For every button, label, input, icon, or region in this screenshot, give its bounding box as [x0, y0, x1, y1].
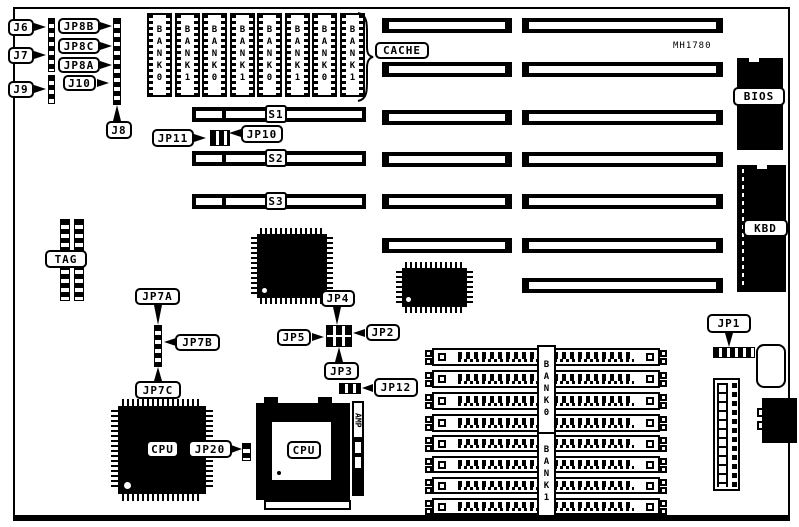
amp-slot-1	[355, 442, 361, 453]
callout-jp1: JP1	[707, 314, 751, 333]
callout-jp5-label: JP5	[283, 331, 306, 344]
callout-j10-label: J10	[68, 77, 91, 90]
callout-j10: J10	[63, 75, 96, 91]
simm-tab	[660, 416, 667, 423]
dram-bank0-label: BANK0	[537, 345, 556, 434]
slot-s2-label: S2	[265, 149, 287, 167]
simm-latch-left	[438, 397, 446, 405]
simm-tab	[660, 500, 667, 507]
pointer-jp11	[194, 134, 206, 142]
simm-tab	[660, 358, 667, 365]
pointer-j10	[97, 79, 109, 87]
jp20-jumper	[242, 443, 251, 461]
bank-label: BANK0	[204, 15, 225, 95]
callout-jp5: JP5	[277, 329, 311, 346]
simm-tab	[660, 372, 667, 379]
bank-label: BANK1	[177, 15, 198, 95]
cache-simm-socket: BANK1	[175, 13, 200, 97]
cpu-pga-pin1-dot	[277, 471, 281, 475]
isa-slot-8bit-segment	[382, 18, 512, 33]
kbd-label: KBD	[743, 219, 788, 237]
cpu-pins-bottom	[122, 494, 202, 501]
power-connector	[713, 378, 740, 491]
simm-latch-left	[438, 482, 446, 490]
simm-tab	[660, 380, 667, 387]
chip2-pins-bottom	[405, 307, 464, 313]
bank-label: BANK0	[259, 15, 280, 95]
amp-power-connector: AMP	[352, 401, 364, 496]
simm-latch-right	[646, 419, 654, 427]
jp7-jumper-strip	[154, 325, 162, 367]
motherboard-diagram: J6 J7 J9 JP8B JP8C JP8A J10 J8 BANK0 BAN…	[0, 0, 799, 527]
callout-jp20: JP20	[188, 440, 232, 458]
simm-tab	[425, 372, 432, 379]
callout-jp8a: JP8A	[58, 57, 100, 73]
cache-simm-socket: BANK0	[147, 13, 172, 97]
chipset-chip-2	[402, 268, 467, 307]
jp8-jumper-strip	[113, 18, 121, 105]
simm-latch-left	[438, 440, 446, 448]
slot-s3-label: S3	[265, 192, 287, 210]
callout-j6: J6	[8, 19, 34, 36]
simm-latch-right	[646, 503, 654, 511]
simm-latch-right	[646, 461, 654, 469]
simm-tab	[425, 437, 432, 444]
cpu-pins-left	[111, 410, 118, 490]
simm-latch-right	[646, 353, 654, 361]
din-notch-1	[757, 408, 764, 417]
bios-label: BIOS	[733, 87, 785, 106]
jp12-jumper	[339, 383, 361, 394]
simm-tab	[660, 437, 667, 444]
vl-slot-s1: S1	[192, 107, 366, 122]
simm-tab	[660, 487, 667, 494]
simm-tab	[660, 402, 667, 409]
callout-jp8c: JP8C	[58, 38, 100, 54]
chip1-pins-left	[251, 237, 257, 295]
callout-j8: J8	[106, 121, 132, 139]
cpu-socket-text: CPU	[293, 444, 316, 457]
simm-tab	[660, 394, 667, 401]
bank-label: BANK1	[287, 15, 308, 95]
isa-slot-16bit-segment	[522, 62, 723, 77]
callout-j8-label: J8	[111, 124, 126, 137]
callout-jp8b: JP8B	[58, 18, 100, 34]
callout-jp7a-label: JP7A	[142, 290, 173, 303]
callout-jp4: JP4	[321, 290, 355, 307]
callout-jp2: JP2	[366, 324, 400, 341]
bank-label: BANK0	[314, 15, 335, 95]
callout-jp20-label: JP20	[195, 443, 226, 456]
pointer-j6	[34, 23, 46, 31]
j9-pin-header	[48, 75, 55, 104]
callout-jp12: JP12	[374, 378, 418, 397]
isa-slot-16bit-segment	[522, 194, 723, 209]
callout-jp12-label: JP12	[381, 381, 412, 394]
socket-bottom-bar	[264, 500, 351, 510]
callout-jp7b-label: JP7B	[182, 336, 213, 349]
callout-tag-label: TAG	[55, 253, 78, 266]
simm-latch-right	[646, 440, 654, 448]
callout-tag: TAG	[45, 250, 87, 268]
callout-jp8b-label: JP8B	[64, 20, 95, 33]
isa-slot-8bit-segment	[382, 194, 512, 209]
slot-s3-text: S3	[268, 195, 283, 208]
callout-jp7a: JP7A	[135, 288, 180, 305]
chip2-pins-left	[396, 271, 402, 304]
isa-slot-8bit-segment	[382, 62, 512, 77]
pointer-jp2	[353, 329, 365, 337]
cpu-pins-top	[122, 399, 202, 406]
isa-slot-16bit-segment	[522, 18, 723, 33]
pointer-jp1	[725, 333, 733, 347]
simm-tab	[660, 458, 667, 465]
simm-tab	[660, 466, 667, 473]
jp11-jp10-jumper-block	[210, 130, 230, 146]
simm-latch-left	[438, 419, 446, 427]
battery-outline	[756, 344, 786, 388]
cache-simm-socket: BANK0	[202, 13, 227, 97]
cache-simm-socket: BANK0	[257, 13, 282, 97]
simm-tab	[425, 508, 432, 515]
cache-simm-socket: BANK1	[285, 13, 310, 97]
vl-slot-s2: S2	[192, 151, 366, 166]
chip2-pin1-dot	[406, 297, 411, 302]
vl-slot-s3: S3	[192, 194, 366, 209]
slot-s1-text: S1	[268, 108, 283, 121]
simm-tab	[425, 424, 432, 431]
isa-slot-8bit-segment	[382, 238, 512, 253]
chip1-pins-right	[327, 237, 333, 295]
callout-j7-label: J7	[13, 49, 28, 62]
isa-slot-16bit-segment	[522, 152, 723, 167]
callout-jp8c-label: JP8C	[64, 40, 95, 53]
cpu-qfp-label: CPU	[146, 440, 179, 458]
callout-j9: J9	[8, 81, 34, 98]
cpu-qfp-text: CPU	[151, 443, 174, 456]
simm-tab	[425, 358, 432, 365]
callout-j6-label: J6	[13, 21, 28, 34]
pointer-jp3	[335, 347, 343, 362]
bios-notch	[749, 58, 759, 62]
bios-text: BIOS	[744, 90, 775, 103]
callout-cache: CACHE	[375, 42, 429, 59]
callout-jp10: JP10	[241, 125, 283, 143]
simm-latch-left	[438, 375, 446, 383]
simm-tab	[425, 479, 432, 486]
pointer-jp10	[229, 129, 241, 137]
simm-latch-right	[646, 375, 654, 383]
board-model-text: MH1780	[673, 41, 712, 51]
chipset-chip-1	[257, 234, 327, 298]
simm-tab	[425, 380, 432, 387]
pointer-j8	[113, 105, 121, 121]
callout-j7: J7	[8, 47, 34, 64]
cache-simm-socket: BANK0	[312, 13, 337, 97]
callout-j9-label: J9	[13, 83, 28, 96]
simm-tab	[425, 458, 432, 465]
callout-jp4-label: JP4	[327, 292, 350, 305]
cpu-socket-label: CPU	[287, 441, 321, 459]
bank-label: BANK1	[232, 15, 253, 95]
slot-s1-label: S1	[265, 105, 287, 123]
callout-jp11: JP11	[152, 129, 194, 147]
pointer-jp4	[333, 307, 341, 325]
bank0-text: BANK0	[542, 360, 552, 420]
pointer-jp8a	[100, 61, 112, 69]
simm-tab	[660, 424, 667, 431]
callout-jp3: JP3	[324, 362, 359, 380]
simm-tab	[660, 479, 667, 486]
kbd-notch	[757, 165, 767, 169]
simm-tab	[660, 445, 667, 452]
isa-slot-16bit-segment	[522, 278, 723, 293]
simm-tab	[660, 350, 667, 357]
simm-latch-left	[438, 353, 446, 361]
callout-jp8a-label: JP8A	[64, 59, 95, 72]
amp-text: AMP	[354, 413, 363, 427]
simm-tab	[425, 402, 432, 409]
simm-tab	[660, 508, 667, 515]
pointer-jp7a	[154, 305, 162, 325]
callout-jp7c-label: JP7C	[143, 384, 174, 397]
power-connector-pins-right	[732, 383, 737, 487]
pointer-jp8c	[100, 42, 112, 50]
callout-jp2-label: JP2	[372, 326, 395, 339]
simm-tab	[425, 416, 432, 423]
pointer-j9	[34, 85, 46, 93]
chip1-pins-bottom	[260, 298, 324, 304]
callout-cache-label: CACHE	[383, 44, 421, 57]
power-connector-pins-left	[717, 383, 728, 487]
pointer-jp7c	[154, 367, 162, 381]
simm-latch-right	[646, 482, 654, 490]
keyboard-din-connector	[762, 398, 797, 443]
kbd-text: KBD	[754, 222, 777, 235]
callout-jp7b: JP7B	[175, 334, 220, 351]
bank-label: BANK0	[149, 15, 170, 95]
cache-simm-socket: BANK1	[230, 13, 255, 97]
callout-jp11-label: JP11	[158, 132, 189, 145]
simm-tab	[425, 350, 432, 357]
pointer-jp20	[231, 445, 242, 453]
simm-tab	[425, 500, 432, 507]
callout-jp7c: JP7C	[135, 381, 181, 399]
din-notch-2	[757, 421, 764, 430]
isa-slot-8bit-segment	[382, 152, 512, 167]
simm-tab	[425, 487, 432, 494]
simm-latch-right	[646, 397, 654, 405]
chip2-pins-right	[467, 271, 473, 304]
callout-jp10-label: JP10	[247, 128, 278, 141]
pointer-jp8b	[100, 22, 112, 30]
isa-slot-8bit-segment	[382, 110, 512, 125]
simm-tab	[425, 445, 432, 452]
cache-brace	[356, 12, 374, 102]
simm-tab	[425, 466, 432, 473]
pointer-jp5	[312, 333, 324, 341]
jp1-jumper	[713, 347, 755, 358]
callout-jp3-label: JP3	[330, 365, 353, 378]
dram-bank1-label: BANK1	[537, 432, 556, 517]
pointer-j7	[34, 51, 46, 59]
pointer-jp12	[362, 384, 373, 392]
simm-tab	[425, 394, 432, 401]
slot-s2-text: S2	[268, 152, 283, 165]
jp2-jp5-jumper-block	[326, 325, 352, 347]
chip2-pins-top	[405, 262, 464, 268]
j6-j7-pin-header	[48, 18, 55, 72]
isa-slot-16bit-segment	[522, 110, 723, 125]
amp-slot-2	[355, 457, 361, 468]
callout-jp1-label: JP1	[718, 317, 741, 330]
bank1-text: BANK1	[542, 445, 552, 505]
isa-slot-16bit-segment	[522, 238, 723, 253]
chip1-pin1-dot	[262, 288, 267, 293]
simm-latch-left	[438, 461, 446, 469]
chip1-pins-top	[260, 228, 324, 234]
amp-label: AMP	[354, 403, 362, 437]
cpu-pin1-dot	[124, 482, 131, 489]
simm-latch-left	[438, 503, 446, 511]
